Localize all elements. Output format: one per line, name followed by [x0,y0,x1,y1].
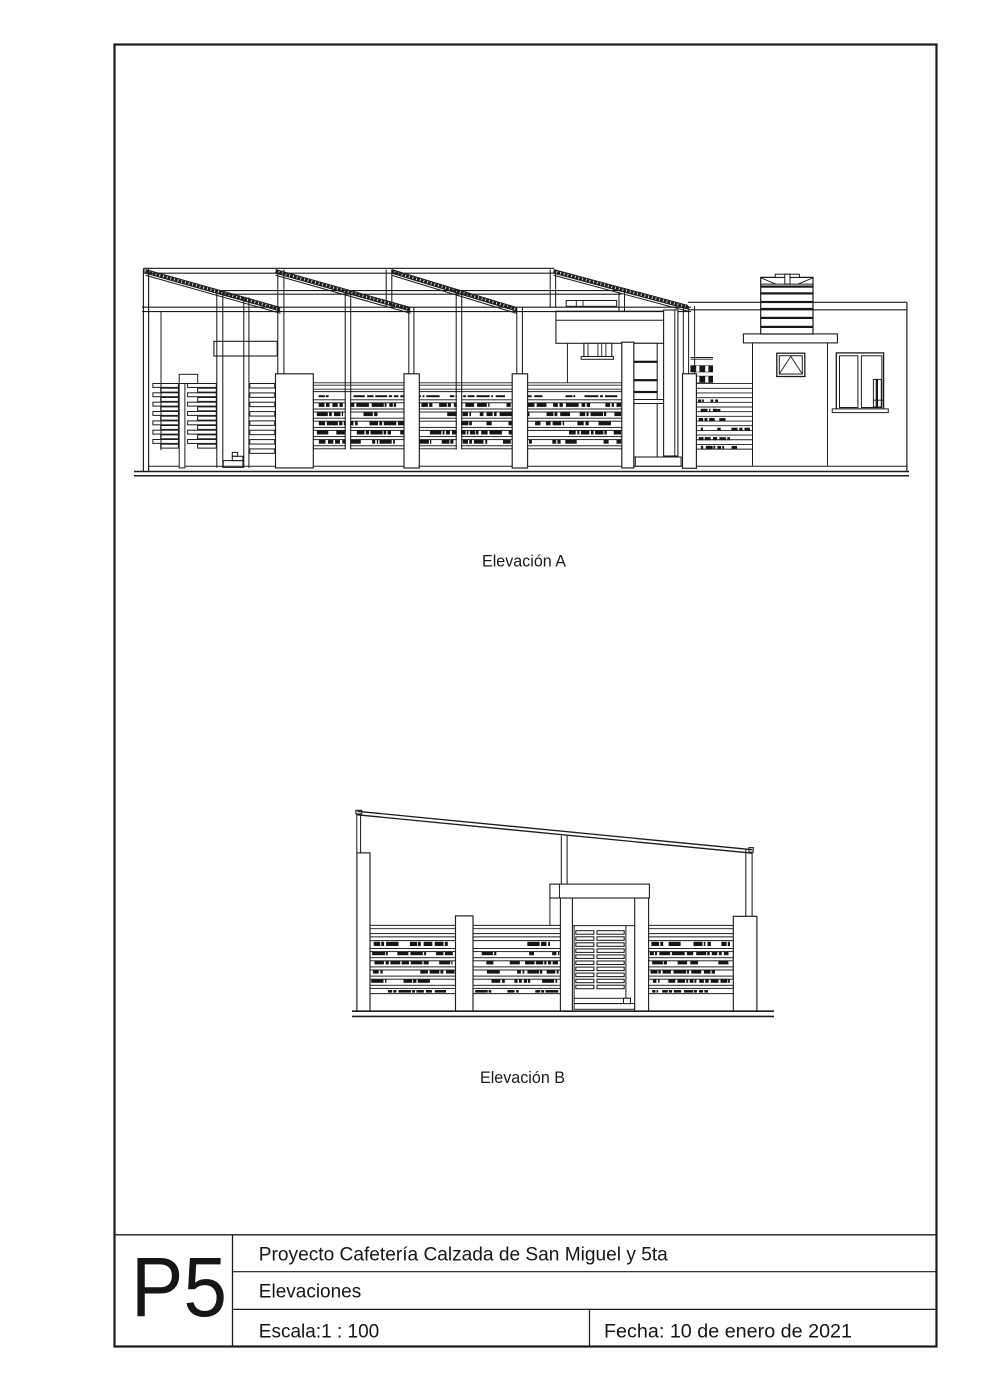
svg-text:Proyecto Cafetería Calzada de: Proyecto Cafetería Calzada de San Miguel… [259,1244,668,1265]
svg-text:Elevaciones: Elevaciones [259,1282,361,1303]
svg-text:Elevación B: Elevación B [480,1068,565,1087]
svg-text:Escala:1 : 100: Escala:1 : 100 [259,1321,379,1342]
svg-text:Fecha: 10 de enero de 2021: Fecha: 10 de enero de 2021 [604,1321,852,1342]
svg-text:Elevación A: Elevación A [482,552,567,571]
svg-text:P5: P5 [131,1240,227,1334]
